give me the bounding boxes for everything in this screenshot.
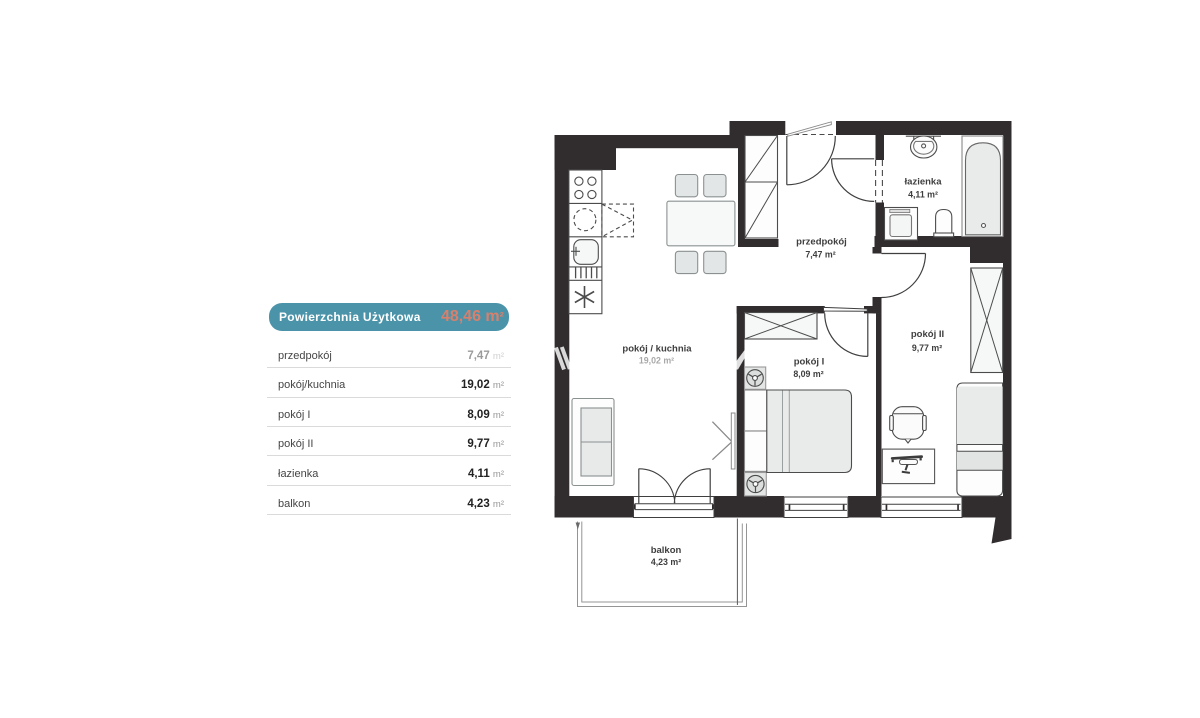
svg-text:9,77 m²: 9,77 m²	[912, 343, 942, 353]
svg-text:balkon: balkon	[651, 545, 682, 556]
svg-text:4,11 m²: 4,11 m²	[908, 190, 938, 200]
svg-text:7,47 m²: 7,47 m²	[805, 250, 835, 260]
svg-text:pokój I: pokój I	[794, 357, 825, 368]
svg-text:4,23 m²: 4,23 m²	[651, 557, 681, 567]
svg-text:pokój / kuchnia: pokój / kuchnia	[622, 344, 692, 355]
svg-text:8,09 m²: 8,09 m²	[793, 369, 823, 379]
svg-text:19,02 m²: 19,02 m²	[639, 356, 674, 366]
svg-text:łazienka: łazienka	[905, 177, 943, 188]
svg-text:przedpokój: przedpokój	[796, 237, 847, 248]
svg-text:pokój II: pokój II	[911, 329, 944, 340]
